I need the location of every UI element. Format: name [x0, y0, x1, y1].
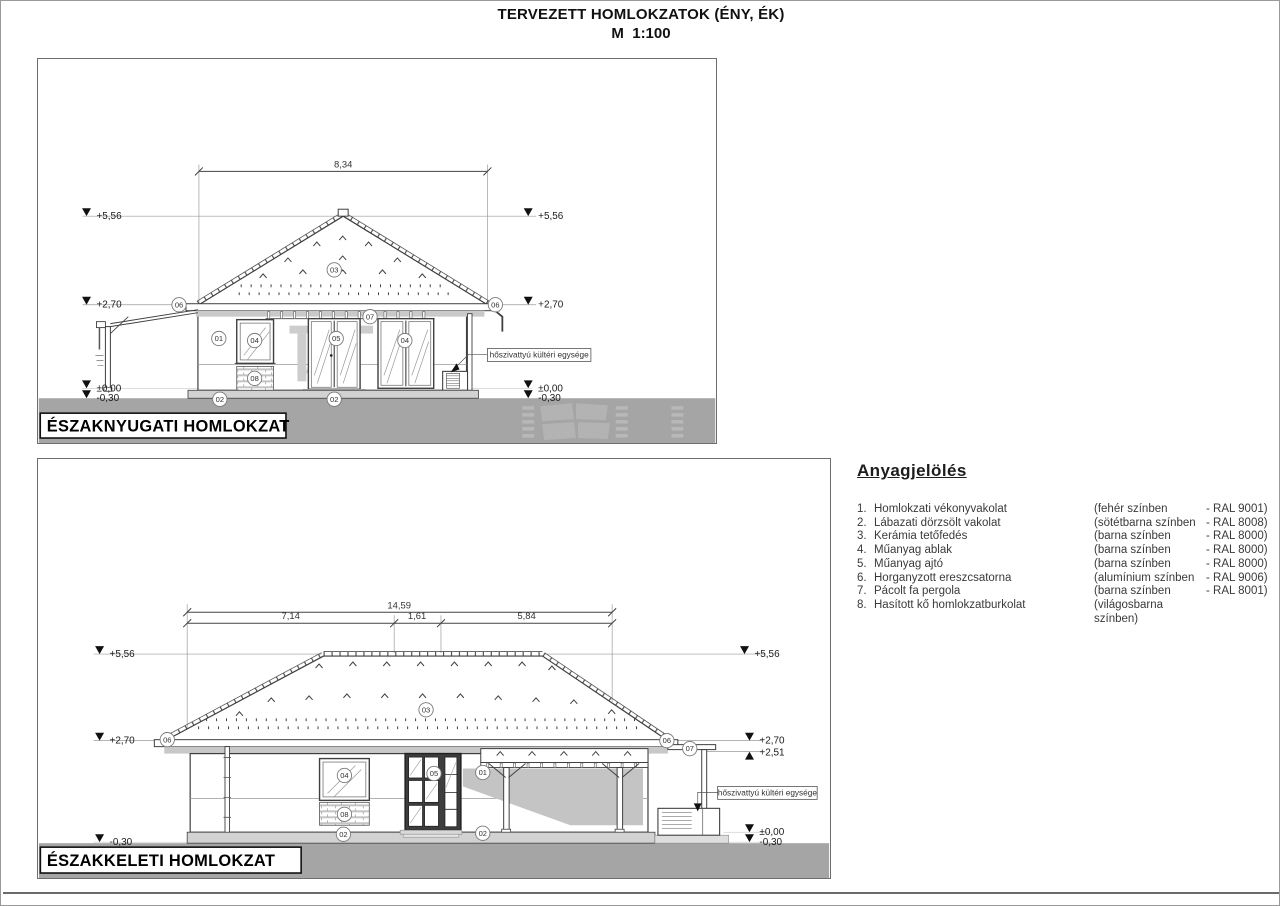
- legend-item-name: Lábazati dörzsölt vakolat: [874, 517, 1094, 531]
- level-label: +5,56: [96, 211, 122, 222]
- heat-pump-unit: [658, 808, 720, 835]
- legend-item: 1. Homlokzati vékonyvakolat (fehér színb…: [857, 503, 1277, 517]
- legend-item: 7. Pácolt fa pergola (barna színben - RA…: [857, 585, 1277, 599]
- window: [378, 319, 434, 389]
- legend-item-name: Homlokzati vékonyvakolat: [874, 503, 1094, 517]
- dimension-total-label: 14,59: [387, 600, 411, 611]
- downpipe: [224, 747, 231, 834]
- roof: [189, 209, 497, 309]
- svg-text:06: 06: [175, 300, 183, 309]
- legend-item-color: (barna színben: [1094, 558, 1206, 572]
- callout-08-badge: 08: [337, 807, 351, 821]
- legend-item-ral: - RAL 8008): [1206, 517, 1277, 531]
- legend-item: 4. Műanyag ablak (barna színben - RAL 80…: [857, 544, 1277, 558]
- svg-text:05: 05: [332, 334, 340, 343]
- entry-door: [303, 319, 365, 394]
- lean-to-pergola: [95, 310, 197, 392]
- callout-03-badge: 03: [327, 263, 341, 277]
- level-label: -0,30: [538, 393, 561, 404]
- elevation-title: ÉSZAKNYUGATI HOMLOKZAT: [40, 413, 289, 438]
- callout-02-badge: 02: [476, 826, 490, 840]
- level-label: +2,70: [538, 300, 564, 311]
- callout-05-badge: 05: [329, 331, 343, 345]
- level-label: +2,70: [96, 300, 122, 311]
- svg-text:06: 06: [491, 300, 499, 309]
- level-label: +5,56: [754, 649, 780, 660]
- legend-item-number: 4.: [857, 544, 874, 558]
- level-label: -0,30: [759, 837, 782, 848]
- materials-legend: Anyagjelölés 1. Homlokzati vékonyvakolat…: [857, 461, 1277, 626]
- svg-text:02: 02: [339, 830, 347, 839]
- northeast-elevation-drawing: 14,59 7,14 1,61 5,84: [38, 459, 830, 878]
- elevation-title: ÉSZAKKELETI HOMLOKZAT: [40, 847, 301, 873]
- svg-text:04: 04: [250, 336, 258, 345]
- dimension-right-label: 5,84: [517, 611, 535, 622]
- dimension-mid-label: 1,61: [408, 611, 426, 622]
- callout-04-badge: 04: [398, 333, 412, 347]
- legend-item-number: 6.: [857, 572, 874, 586]
- legend-item: 2. Lábazati dörzsölt vakolat (sötétbarna…: [857, 517, 1277, 531]
- svg-text:hőszivattyú kültéri egysége: hőszivattyú kültéri egysége: [718, 788, 817, 797]
- dimension-total-label: 8,34: [334, 159, 352, 170]
- legend-item-name: Kerámia tetőfedés: [874, 530, 1094, 544]
- northwest-elevation-drawing: 8,34: [38, 59, 716, 443]
- heat-pump-unit: [443, 371, 468, 390]
- svg-text:05: 05: [430, 769, 438, 778]
- callout-02-badge: 02: [213, 392, 227, 406]
- svg-text:01: 01: [215, 334, 223, 343]
- legend-item-number: 5.: [857, 558, 874, 572]
- drawing-frame-northeast: 14,59 7,14 1,61 5,84: [37, 458, 831, 879]
- legend-item-name: Műanyag ablak: [874, 544, 1094, 558]
- legend-item-ral: - RAL 8000): [1206, 544, 1277, 558]
- page-title: TERVEZETT HOMLOKZATOK (ÉNY, ÉK): [401, 6, 881, 23]
- svg-text:04: 04: [340, 771, 348, 780]
- svg-text:ÉSZAKNYUGATI HOMLOKZAT: ÉSZAKNYUGATI HOMLOKZAT: [47, 417, 290, 436]
- level-label: +2,70: [759, 736, 785, 747]
- downpipe: [468, 314, 472, 391]
- svg-text:hőszivattyú kültéri egysége: hőszivattyú kültéri egysége: [490, 350, 589, 359]
- dimension-left-label: 7,14: [281, 611, 299, 622]
- drawing-frame-northwest: 8,34: [37, 58, 717, 444]
- legend-item-color: (alumínium színben: [1094, 572, 1206, 586]
- legend-item-ral: - RAL 8000): [1206, 530, 1277, 544]
- level-label: +5,56: [538, 211, 564, 222]
- legend-item: 8. Hasított kő homlokzatburkolat (világo…: [857, 599, 1277, 626]
- legend-item-ral: - RAL 8001): [1206, 585, 1277, 599]
- svg-text:02: 02: [330, 395, 338, 404]
- legend-item-color: (barna színben: [1094, 544, 1206, 558]
- callout-01-badge: 01: [476, 765, 490, 779]
- callout-03-badge: 03: [419, 703, 433, 717]
- drawing-sheet: TERVEZETT HOMLOKZATOK (ÉNY, ÉK) M 1:100: [0, 0, 1280, 906]
- terrace-slab: [655, 835, 729, 843]
- svg-text:01: 01: [479, 768, 487, 777]
- callout-02-badge: 02: [327, 392, 341, 406]
- legend-item-name: Horganyzott ereszcsatorna: [874, 572, 1094, 586]
- callout-07-badge: 07: [683, 741, 697, 755]
- sheet-bottom-rule: [3, 892, 1279, 894]
- callout-06-badge: 06: [488, 298, 502, 312]
- legend-item: 3. Kerámia tetőfedés (barna színben - RA…: [857, 530, 1277, 544]
- svg-text:03: 03: [330, 265, 338, 274]
- legend-item-ral: - RAL 8000): [1206, 558, 1277, 572]
- callout-04-badge: 04: [337, 768, 351, 782]
- svg-text:06: 06: [663, 736, 671, 745]
- callout-04-badge: 04: [247, 333, 261, 347]
- svg-text:03: 03: [422, 705, 430, 714]
- level-label: +2,70: [110, 736, 136, 747]
- legend-item: 5. Műanyag ajtó (barna színben - RAL 800…: [857, 558, 1277, 572]
- legend-item-name: Hasított kő homlokzatburkolat: [874, 599, 1094, 626]
- callout-06-badge: 06: [160, 732, 174, 746]
- entry-door: [400, 754, 462, 838]
- svg-text:04: 04: [401, 336, 409, 345]
- legend-item-ral: - RAL 9006): [1206, 572, 1277, 586]
- legend-item: 6. Horganyzott ereszcsatorna (alumínium …: [857, 572, 1277, 586]
- level-label: +2,51: [759, 748, 785, 759]
- page-scale-label: M 1:100: [401, 25, 881, 42]
- legend-item-color: (barna színben: [1094, 530, 1206, 544]
- legend-item-number: 2.: [857, 517, 874, 531]
- legend-item-number: 3.: [857, 530, 874, 544]
- svg-text:07: 07: [686, 744, 694, 753]
- svg-text:02: 02: [216, 395, 224, 404]
- legend-title: Anyagjelölés: [857, 461, 1277, 481]
- legend-item-number: 7.: [857, 585, 874, 599]
- legend-item-ral: - RAL 9001): [1206, 503, 1277, 517]
- legend-item-color: (fehér színben: [1094, 503, 1206, 517]
- heat-pump-label: hőszivattyú kültéri egysége: [694, 786, 818, 811]
- level-label: +5,56: [110, 649, 136, 660]
- callout-05-badge: 05: [427, 766, 441, 780]
- callout-01-badge: 01: [212, 331, 226, 345]
- callout-02-badge: 02: [336, 827, 350, 841]
- roof: [155, 652, 677, 747]
- legend-item-ral: [1206, 599, 1277, 626]
- svg-text:06: 06: [163, 735, 171, 744]
- svg-text:08: 08: [250, 374, 258, 383]
- svg-text:08: 08: [340, 810, 348, 819]
- svg-text:02: 02: [479, 829, 487, 838]
- callout-06-badge: 06: [660, 733, 674, 747]
- legend-item-color: (barna színben: [1094, 585, 1206, 599]
- legend-item-color: (sötétbarna színben: [1094, 517, 1206, 531]
- svg-text:07: 07: [366, 312, 374, 321]
- level-label: -0,30: [96, 393, 119, 404]
- legend-item-number: 8.: [857, 599, 874, 626]
- callout-06-badge: 06: [172, 298, 186, 312]
- legend-item-name: Pácolt fa pergola: [874, 585, 1094, 599]
- legend-item-number: 1.: [857, 503, 874, 517]
- callout-08-badge: 08: [247, 371, 261, 385]
- legend-item-name: Műanyag ajtó: [874, 558, 1094, 572]
- legend-item-color: (világosbarna színben): [1094, 599, 1206, 626]
- callout-07-badge: 07: [363, 309, 377, 323]
- svg-text:ÉSZAKKELETI HOMLOKZAT: ÉSZAKKELETI HOMLOKZAT: [47, 851, 275, 870]
